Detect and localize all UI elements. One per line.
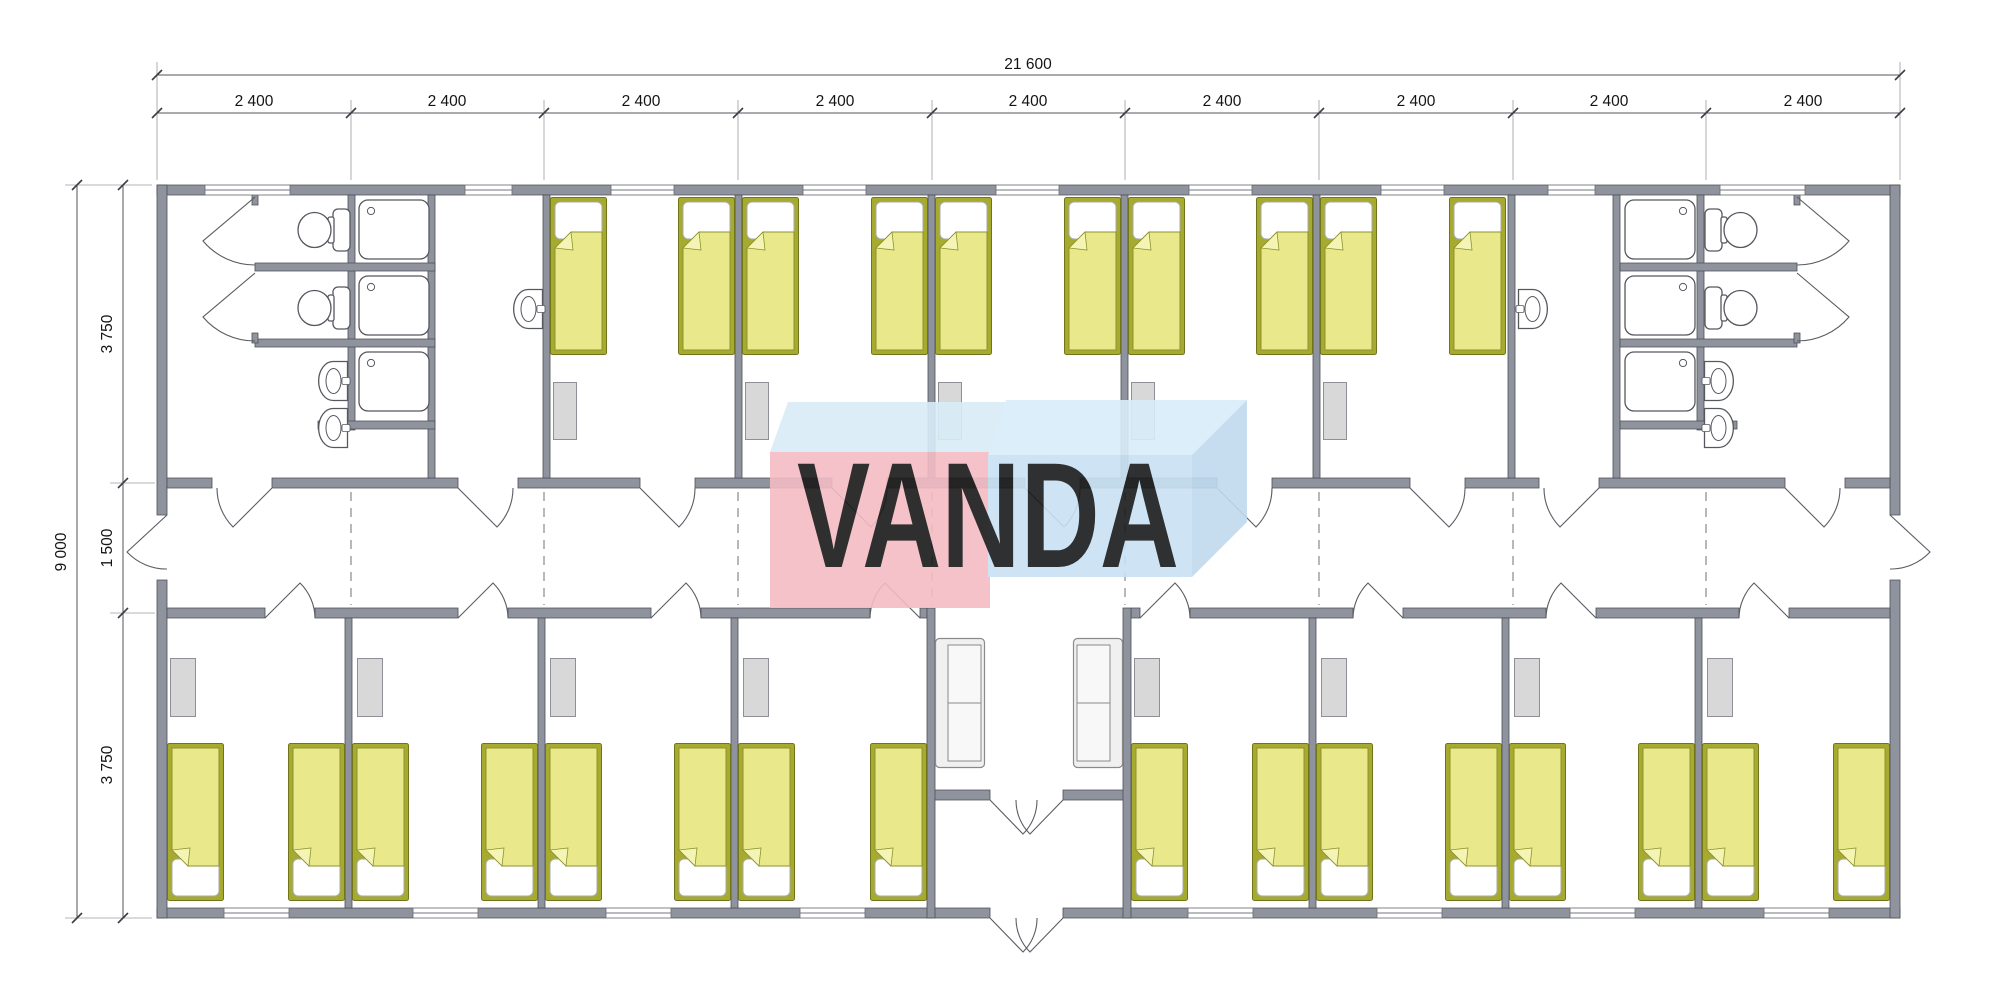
dim-overall-width: 21 600 <box>1004 56 1052 73</box>
door-icon <box>1546 583 1596 618</box>
bed-icon <box>1703 744 1759 901</box>
window-icon <box>1570 908 1635 918</box>
wardrobe-icon <box>358 659 383 717</box>
sink-icon <box>319 362 350 401</box>
window-icon <box>224 908 289 918</box>
window-icon <box>413 908 478 918</box>
dim-module: 2 400 <box>235 93 274 110</box>
bed-icon <box>1132 744 1188 901</box>
window-icon <box>611 185 674 195</box>
bed-icon <box>1253 744 1309 901</box>
sink-icon <box>1516 290 1547 329</box>
door-icon <box>265 583 315 618</box>
dim-module: 2 400 <box>1784 93 1823 110</box>
window-icon <box>1764 908 1829 918</box>
dim-zone: 1 500 <box>99 528 116 567</box>
bathroom-left <box>203 197 429 448</box>
bed-icon <box>1450 198 1506 355</box>
wardrobe-icon <box>1322 659 1347 717</box>
bed-icon <box>743 198 799 355</box>
sink-icon <box>319 409 350 448</box>
beds-top-row <box>551 198 1506 355</box>
door-icon <box>640 488 695 527</box>
sink-icon <box>514 290 545 329</box>
bed-icon <box>168 744 224 901</box>
window-icon <box>465 185 512 195</box>
bed-icon <box>1065 198 1121 355</box>
bed-icon <box>353 744 409 901</box>
floor-plan-page: VANDA 21 600 2 400 2 400 2 400 2 400 2 4… <box>0 0 2000 999</box>
stall-door-icon <box>1797 197 1849 265</box>
bed-icon <box>551 198 607 355</box>
double-door-icon <box>1016 800 1063 834</box>
shower-icon <box>1625 276 1695 335</box>
bed-icon <box>1834 744 1890 901</box>
door-icon <box>651 583 701 618</box>
toilet-icon <box>1705 209 1757 251</box>
shower-icon <box>1625 200 1695 259</box>
wardrobe-icon <box>744 659 769 717</box>
door-icon <box>1544 488 1599 527</box>
wash-lobby-left <box>514 290 545 329</box>
double-door-icon <box>990 800 1037 834</box>
wardrobe-icon <box>1324 383 1347 440</box>
bed-icon <box>1129 198 1185 355</box>
window-icon <box>996 185 1059 195</box>
beds-bottom-row <box>168 744 1890 901</box>
wardrobe-icon <box>1135 659 1160 717</box>
bed-icon <box>871 744 927 901</box>
door-icon <box>1739 583 1789 618</box>
bed-icon <box>1317 744 1373 901</box>
bed-icon <box>482 744 538 901</box>
wardrobe-icon <box>1708 659 1733 717</box>
bed-icon <box>1510 744 1566 901</box>
window-icon <box>205 185 290 195</box>
sink-icon <box>1702 409 1733 448</box>
bed-icon <box>1639 744 1695 901</box>
dim-module: 2 400 <box>1590 93 1629 110</box>
bed-icon <box>675 744 731 901</box>
shower-icon <box>359 200 429 259</box>
shower-icon <box>1625 352 1695 411</box>
door-icon <box>1785 488 1840 527</box>
dimensions-top: 21 600 2 400 2 400 2 400 2 400 2 400 2 4… <box>152 56 1905 180</box>
window-icon <box>1548 185 1595 195</box>
toilet-icon <box>1705 287 1757 329</box>
stall-door-icon <box>203 197 255 265</box>
window-icon <box>803 185 866 195</box>
dimensions-left: 9 000 3 750 1 500 3 750 <box>53 180 155 923</box>
sink-icon <box>1702 362 1733 401</box>
shower-icon <box>359 352 429 411</box>
wash-lobby-right <box>1516 290 1547 329</box>
wardrobe-icon <box>1515 659 1540 717</box>
corridor-end-door-icon <box>127 515 167 569</box>
dim-zone: 3 750 <box>99 314 116 353</box>
entrance-door-icon <box>1016 918 1063 952</box>
window-icon <box>606 908 671 918</box>
window-icon <box>1720 185 1805 195</box>
bed-icon <box>289 744 345 901</box>
shower-icon <box>359 276 429 335</box>
window-icon <box>1377 908 1442 918</box>
dim-overall-height: 9 000 <box>53 532 70 571</box>
watermark-text: VANDA <box>797 431 1179 599</box>
bed-icon <box>679 198 735 355</box>
bathroom-right <box>1625 197 1849 448</box>
dim-zone: 3 750 <box>99 745 116 784</box>
bed-icon <box>1321 198 1377 355</box>
wardrobe-icon <box>551 659 576 717</box>
toilet-icon <box>298 209 350 251</box>
door-icon <box>458 488 513 527</box>
bed-icon <box>1257 198 1313 355</box>
dim-module: 2 400 <box>1203 93 1242 110</box>
sofa-icon <box>936 639 985 768</box>
dim-module: 2 400 <box>428 93 467 110</box>
sofa-icon <box>1074 639 1123 768</box>
door-icon <box>1353 583 1403 618</box>
wardrobe-icon <box>554 383 577 440</box>
wardrobe-icon <box>746 383 769 440</box>
stall-door-icon <box>203 273 255 341</box>
door-icon <box>1410 488 1465 527</box>
bed-icon <box>1446 744 1502 901</box>
dim-module: 2 400 <box>622 93 661 110</box>
toilet-icon <box>298 287 350 329</box>
stall-door-icon <box>1797 273 1849 341</box>
wardrobe-icon <box>171 659 196 717</box>
bed-icon <box>936 198 992 355</box>
window-icon <box>1188 908 1253 918</box>
window-icon <box>800 908 865 918</box>
window-icon <box>1189 185 1252 195</box>
dim-module: 2 400 <box>1397 93 1436 110</box>
bed-icon <box>872 198 928 355</box>
entrance-door-icon <box>990 918 1037 952</box>
corridor-end-door-icon <box>1890 515 1930 569</box>
watermark-logo: VANDA <box>770 400 1247 608</box>
door-icon <box>217 488 272 527</box>
bed-icon <box>546 744 602 901</box>
dim-module: 2 400 <box>1009 93 1048 110</box>
window-icon <box>1381 185 1444 195</box>
bed-icon <box>739 744 795 901</box>
dim-module: 2 400 <box>816 93 855 110</box>
door-icon <box>458 583 508 618</box>
floor-plan-drawing: VANDA 21 600 2 400 2 400 2 400 2 400 2 4… <box>0 0 2000 999</box>
